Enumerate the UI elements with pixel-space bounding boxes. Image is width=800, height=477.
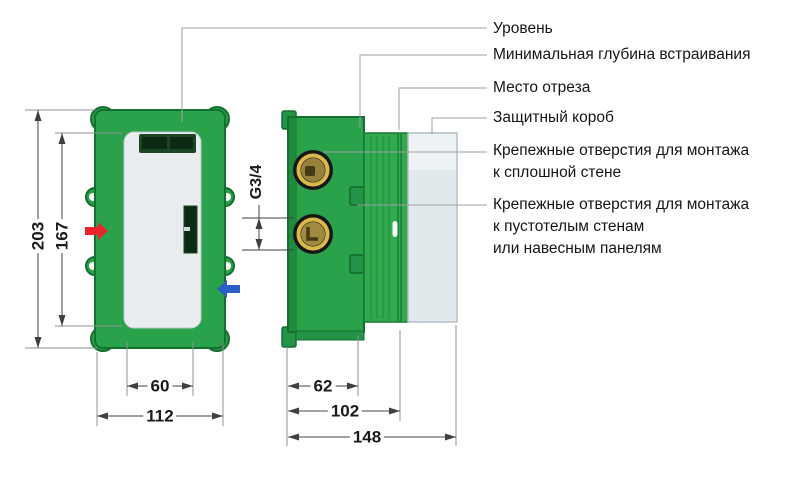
callout-hollow-wall-holes-line2: к пустотелым стенам [493,216,749,238]
level-slot-opening [142,137,167,149]
dim-side-body-depth: 62 [311,378,336,395]
side-view [282,111,457,347]
installation-diagram: 203 167 60 112 G3/4 62 102 148 Уровень М… [0,0,800,477]
callout-solid-wall-holes-line1: Крепежные отверстия для монтажа [493,140,749,162]
callout-min-embed-depth-text: Минимальная глубина встраивания [493,44,750,66]
callout-level: Уровень [493,18,553,40]
inlet-port-bottom [293,214,333,254]
callout-min-embed-depth: Минимальная глубина встраивания [493,44,750,66]
dim-thread-size: G3/4 [249,162,265,203]
front-view [85,107,240,351]
fastening-clip-top [350,187,364,205]
dim-front-panel-height: 167 [54,219,71,253]
callout-protective-box: Защитный короб [493,107,614,129]
callout-level-text: Уровень [493,18,553,40]
callout-hollow-wall-holes: Крепежные отверстия для монтажа к пустот… [493,194,749,260]
mixer-body-foot [296,331,364,340]
fastening-clip-bottom [350,255,364,273]
callout-cut-point: Место отреза [493,77,590,99]
cut-section-slot [393,221,398,237]
dim-side-cut-depth: 102 [328,403,362,420]
inlet-port-top [293,150,333,190]
port-bore [301,222,325,246]
function-slot-notch [184,227,190,231]
callout-protective-box-text: Защитный короб [493,107,614,129]
callout-hollow-wall-holes-line1: Крепежные отверстия для монтажа [493,194,749,216]
dim-front-slot-spacing: 60 [148,378,173,395]
level-slot-opening [170,137,193,149]
callout-solid-wall-holes: Крепежные отверстия для монтажа к сплошн… [493,140,749,184]
callout-solid-wall-holes-line2: к сплошной стене [493,162,749,184]
dim-front-outer-height: 203 [30,219,47,253]
callout-cut-point-text: Место отреза [493,77,590,99]
port-notch [305,166,315,176]
dim-side-total-depth: 148 [350,429,384,446]
dim-front-width: 112 [143,408,176,425]
callout-hollow-wall-holes-line3: или навесным панелям [493,238,749,260]
